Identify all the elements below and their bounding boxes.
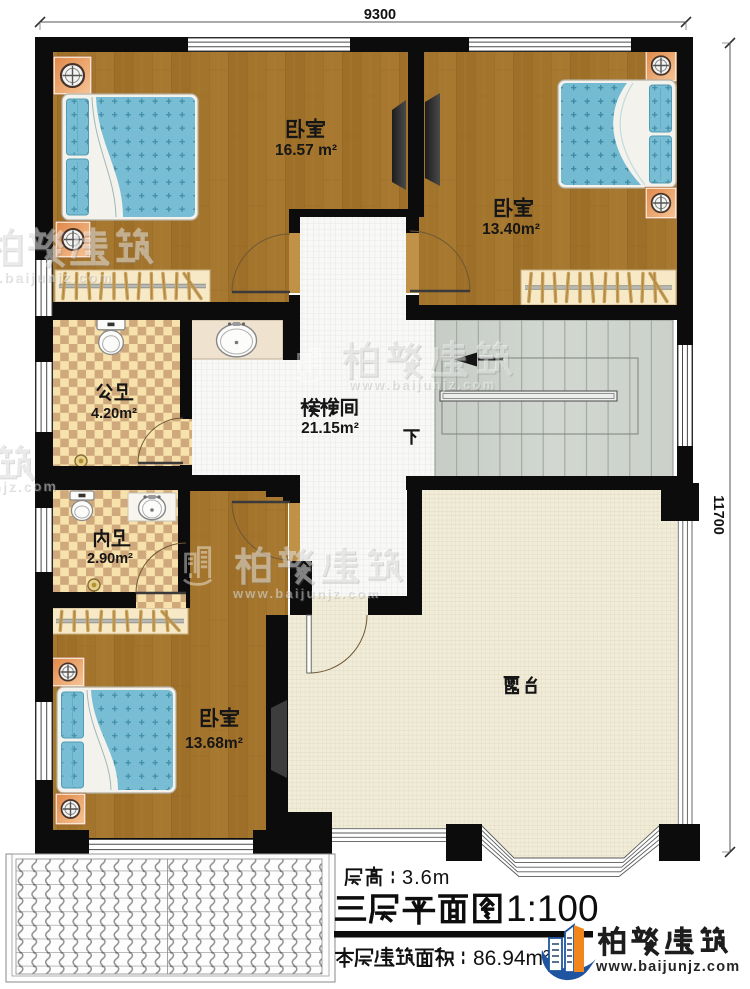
svg-text:21.15m²: 21.15m² (301, 420, 359, 437)
svg-text:13.40m²: 13.40m² (482, 221, 540, 238)
svg-text:86.94m²: 86.94m² (473, 947, 550, 970)
svg-text:4.20m²: 4.20m² (91, 406, 137, 422)
svg-text:www.baijunjz.com: www.baijunjz.com (348, 377, 496, 392)
svg-text:1:100: 1:100 (506, 888, 599, 929)
svg-text:www.baijunjz.com: www.baijunjz.com (232, 586, 380, 601)
svg-text:11700: 11700 (710, 495, 726, 535)
svg-text:www.baijunjz.com: www.baijunjz.com (595, 959, 740, 975)
svg-text:www.baijunjz.com: www.baijunjz.com (0, 478, 58, 494)
svg-text:9300: 9300 (364, 7, 396, 23)
svg-text:16.57 m²: 16.57 m² (275, 142, 337, 159)
svg-text:13.68m²: 13.68m² (185, 735, 243, 752)
svg-text:2.90m²: 2.90m² (87, 551, 133, 567)
svg-text:www.baijunjz.com: www.baijunjz.com (0, 269, 113, 285)
svg-text:3.6m: 3.6m (402, 867, 450, 889)
